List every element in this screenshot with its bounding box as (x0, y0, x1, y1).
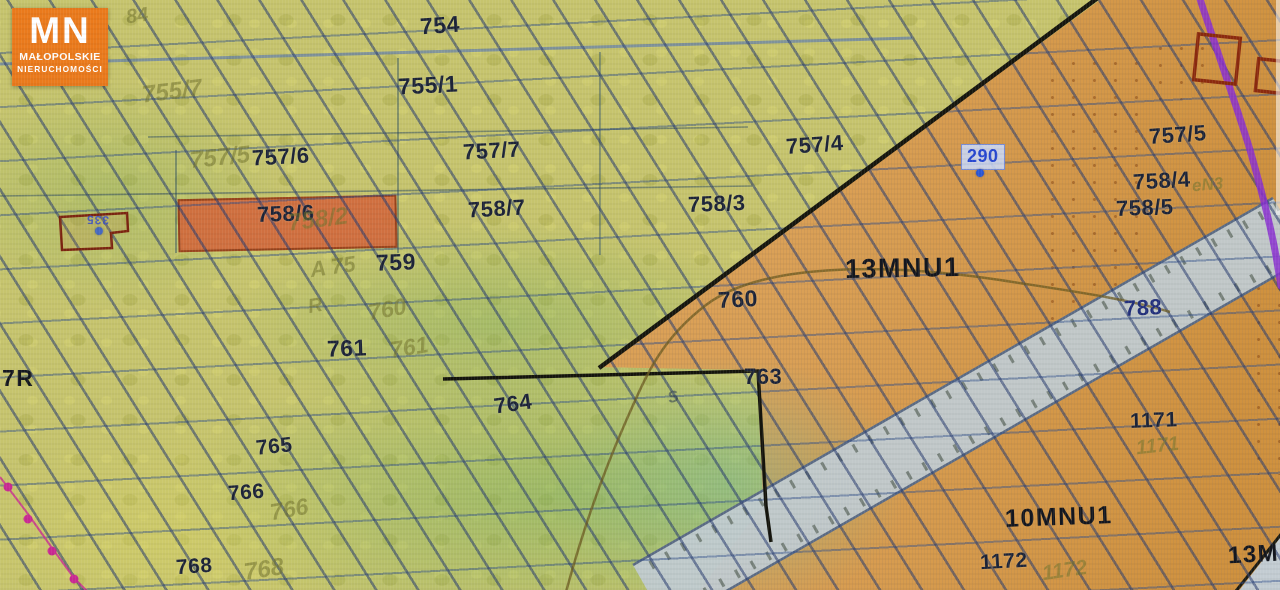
company-logo: MN MAŁOPOLSKIE NIERUCHOMOŚCI (12, 8, 108, 86)
selected-parcel-highlight (177, 195, 397, 253)
address-point-290: 290 (961, 144, 1005, 170)
address-point-icon (95, 227, 103, 235)
map-canvas[interactable]: 754755/1757/6757/7757/4757/5758/6758/775… (0, 0, 1280, 590)
address-point-icon (976, 169, 984, 177)
address-point-290-label: 290 (967, 146, 999, 166)
building-number-335: 335 (86, 213, 110, 228)
logo-initials: MN (12, 12, 108, 51)
logo-line2: NIERUCHOMOŚCI (12, 64, 108, 75)
logo-line1: MAŁOPOLSKIE (12, 51, 108, 64)
